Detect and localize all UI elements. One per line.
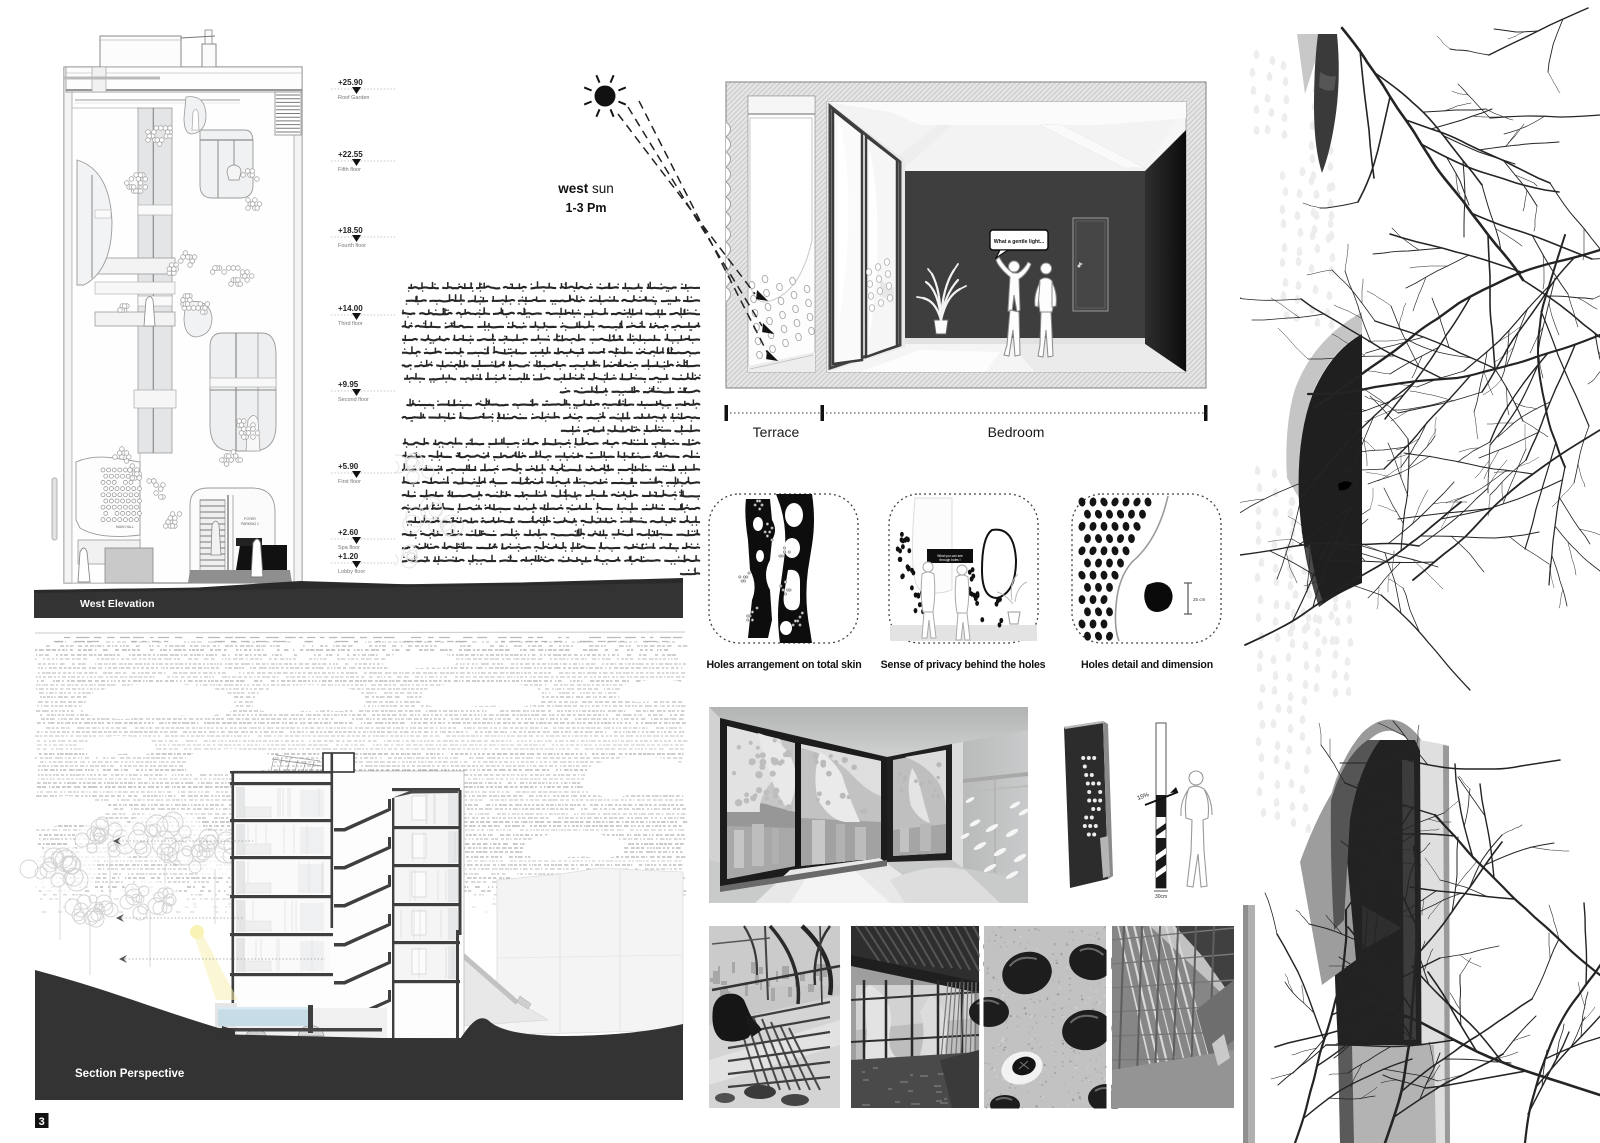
svg-text:Fifth floor: Fifth floor: [338, 167, 361, 173]
svg-text:+22.55: +22.55: [338, 150, 363, 159]
svg-text:+5.90: +5.90: [338, 462, 359, 471]
svg-text:Bedroom: Bedroom: [988, 424, 1045, 440]
svg-text:through holes !: through holes !: [939, 558, 960, 562]
svg-text:Third floor: Third floor: [338, 321, 363, 327]
svg-text:Section Perspective: Section Perspective: [75, 1068, 184, 1080]
svg-text:15%: 15%: [1137, 792, 1151, 802]
svg-text:30cm: 30cm: [1155, 894, 1167, 900]
svg-text:+9.95: +9.95: [338, 380, 359, 389]
svg-text:What a gentle light...: What a gentle light...: [994, 239, 1045, 245]
svg-text:Holes detail and dimension: Holes detail and dimension: [1081, 659, 1213, 671]
svg-text:+14.00: +14.00: [338, 304, 363, 313]
svg-text:25 cm: 25 cm: [1193, 597, 1206, 602]
svg-text:+18.50: +18.50: [338, 226, 363, 235]
svg-text:Terrace: Terrace: [753, 424, 800, 440]
svg-text:Holes arrangement on total ski: Holes arrangement on total skin: [706, 659, 861, 671]
svg-text:Roof Garden: Roof Garden: [338, 95, 370, 101]
svg-text:3: 3: [39, 1116, 45, 1128]
svg-text:West Elevation: West Elevation: [80, 598, 155, 610]
svg-text:FOYER: FOYER: [244, 517, 256, 521]
svg-text:+2.60: +2.60: [338, 528, 359, 537]
svg-text:Second floor: Second floor: [338, 397, 369, 403]
svg-text:MAIN HALL: MAIN HALL: [116, 525, 134, 529]
svg-text:Sense of privacy behind the ho: Sense of privacy behind the holes: [881, 659, 1046, 671]
svg-text:+25.90: +25.90: [338, 78, 363, 87]
svg-text:PARKING 1: PARKING 1: [241, 522, 259, 526]
svg-text:Spa floor: Spa floor: [338, 545, 360, 551]
svg-text:Fourth floor: Fourth floor: [338, 243, 366, 249]
svg-text:Lobby floor: Lobby floor: [338, 569, 365, 575]
svg-text:+1.20: +1.20: [338, 552, 359, 561]
svg-text:First floor: First floor: [338, 479, 361, 485]
